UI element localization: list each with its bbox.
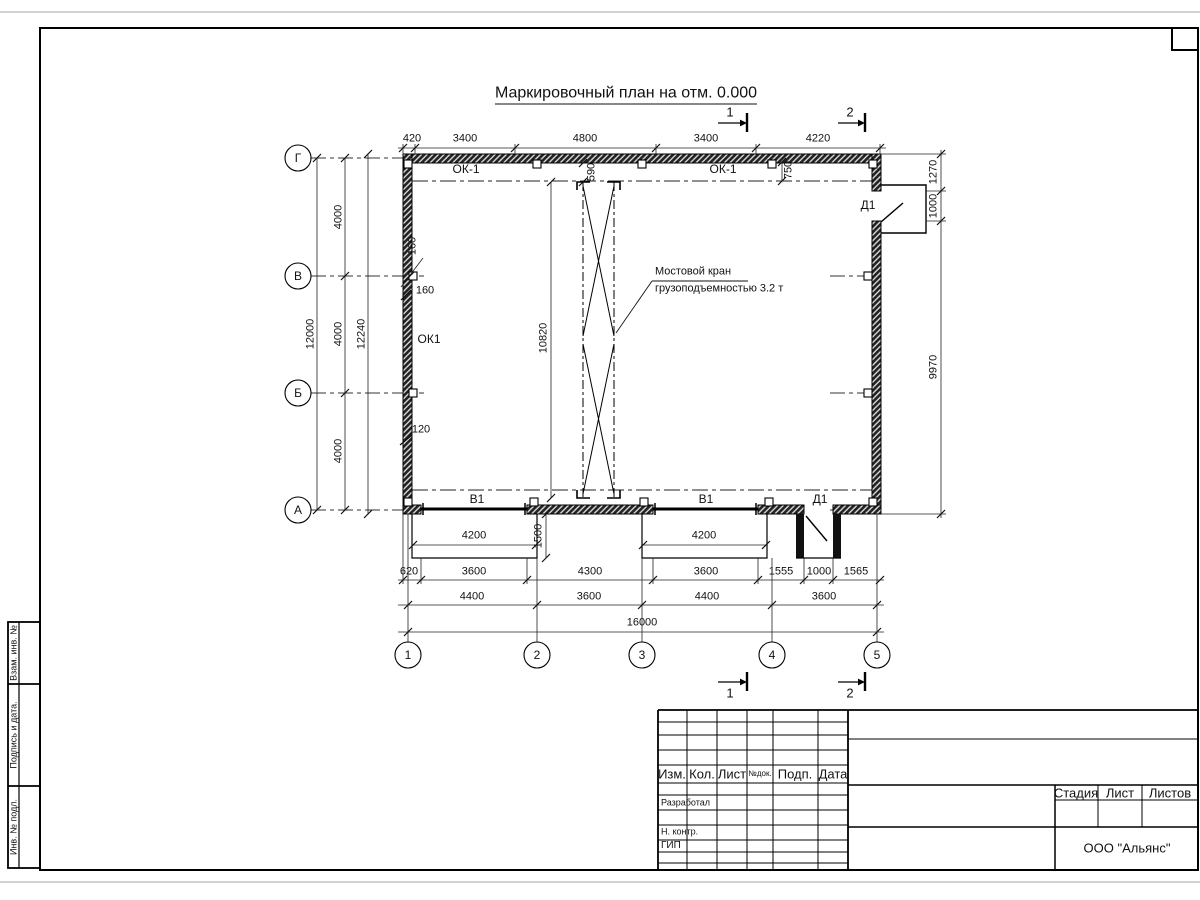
paper-edges (0, 12, 1200, 882)
dim-b2-1: 3600 (577, 592, 601, 603)
dim-b1-6: 1565 (844, 567, 868, 578)
axis-col-3: 3 (639, 649, 646, 661)
mark-gate-1: В1 (470, 493, 485, 505)
dim-b2-2: 4400 (695, 592, 719, 603)
axis-col-4: 4 (769, 649, 776, 661)
tb-header-ndok: №док. (748, 770, 771, 778)
dim-b1-1: 3600 (462, 567, 486, 578)
tb-company: ООО "Альянс" (1084, 842, 1171, 855)
door-swing-top (881, 203, 903, 222)
section-1-top: 1 (726, 106, 733, 119)
vestibule (881, 185, 926, 233)
dim-b1-2: 4300 (578, 567, 602, 578)
dim-left-outer: 12240 (357, 319, 368, 350)
mark-gate-2: В1 (699, 493, 714, 505)
dim-offset-750: 750 (784, 161, 795, 179)
dim-b1-3: 3600 (694, 567, 718, 578)
drawing-sheet: Маркировочный план на отм. 0.000 420 340… (0, 0, 1200, 900)
dim-crane-span: 10820 (539, 323, 550, 354)
dim-left-seg-2: 4000 (334, 439, 345, 463)
tb-sheets-header: Листов (1149, 787, 1191, 800)
dim-right-1: 1000 (929, 194, 940, 218)
dim-b-total: 16000 (627, 618, 658, 629)
dim-ramp-depth: 1500 (534, 524, 545, 548)
axis-row-v: В (294, 270, 302, 282)
axis-col-2: 2 (534, 649, 541, 661)
crane-note-line2: грузоподъемностью 3.2 т (655, 284, 783, 295)
tb-stage-header: Стадия (1054, 787, 1098, 800)
walls (403, 154, 881, 514)
crane (577, 182, 620, 498)
dim-top-4: 4220 (806, 134, 830, 145)
wall-left (403, 154, 412, 514)
dim-b1-0: 620 (400, 567, 418, 578)
tb-header-kol: Кол. (689, 768, 715, 781)
dim-ramp2-width: 4200 (692, 531, 716, 542)
mark-window-top-right: ОК-1 (710, 163, 737, 175)
top-right-stamp-box (1172, 28, 1198, 50)
dim-right-0: 1270 (929, 160, 940, 184)
mark-door-bottom: Д1 (813, 493, 828, 505)
dim-offset-160b: 160 (416, 286, 434, 297)
wall-right-lower (872, 221, 881, 514)
axis-col-5: 5 (874, 649, 881, 661)
dim-top-0: 420 (403, 134, 421, 145)
dim-offset-590: 590 (587, 163, 598, 181)
tb-header-podp: Подп. (778, 768, 813, 781)
section-2-top: 2 (846, 106, 853, 119)
mark-door-top: Д1 (861, 199, 876, 211)
axis-row-b: Б (294, 387, 302, 399)
tb-header-izm: Изм. (658, 768, 686, 781)
section-2-bottom: 2 (846, 687, 853, 700)
dim-top-1: 3400 (453, 134, 477, 145)
dim-offset-160a: 160 (408, 237, 419, 255)
axis-col-1: 1 (405, 649, 412, 661)
section-1-bottom: 1 (726, 687, 733, 700)
dim-top-2: 4800 (573, 134, 597, 145)
mark-window-top-left: ОК-1 (453, 163, 480, 175)
crane-rail-lines (412, 181, 872, 490)
tb-header-list: Лист (718, 768, 746, 781)
tb-header-data: Дата (819, 768, 848, 781)
door-swing-bottom (806, 516, 827, 541)
dim-ramp1-width: 4200 (462, 531, 486, 542)
wall-bottom-2 (527, 505, 653, 514)
dim-right-2: 9970 (929, 355, 940, 379)
dim-b1-4: 1555 (769, 567, 793, 578)
dim-left-seg-0: 4000 (334, 205, 345, 229)
margin-vzam-inv: Взам. инв. № (10, 625, 19, 681)
section-marks (718, 113, 865, 691)
axis-lines (311, 158, 872, 510)
dim-b2-3: 3600 (812, 592, 836, 603)
dim-left-overall: 12000 (306, 319, 317, 350)
column-marks (404, 160, 877, 506)
axis-row-g: Г (295, 152, 302, 164)
dim-b2-0: 4400 (460, 592, 484, 603)
door-porch (796, 514, 841, 558)
axis-row-a: А (294, 504, 302, 516)
dim-top-3: 3400 (694, 134, 718, 145)
dim-left-seg-1: 4000 (334, 322, 345, 346)
drawing-canvas (0, 0, 1200, 900)
dim-offset-120: 120 (412, 425, 430, 436)
tb-role-gip: ГИП (661, 841, 681, 851)
mark-window-left: ОК1 (418, 333, 441, 345)
tb-sheet-header: Лист (1106, 787, 1134, 800)
tb-role-ncontrol: Н. контр. (661, 828, 698, 837)
dim-b1-5: 1000 (807, 567, 831, 578)
tb-role-developed: Разработал (661, 799, 710, 808)
margin-inv-podl: Инв. № подл. (10, 799, 19, 855)
drawing-title: Маркировочный план на отм. 0.000 (495, 86, 757, 105)
margin-podpis-data: Подпись и дата. (10, 701, 19, 768)
crane-note-line1: Мостовой кран (655, 267, 731, 278)
